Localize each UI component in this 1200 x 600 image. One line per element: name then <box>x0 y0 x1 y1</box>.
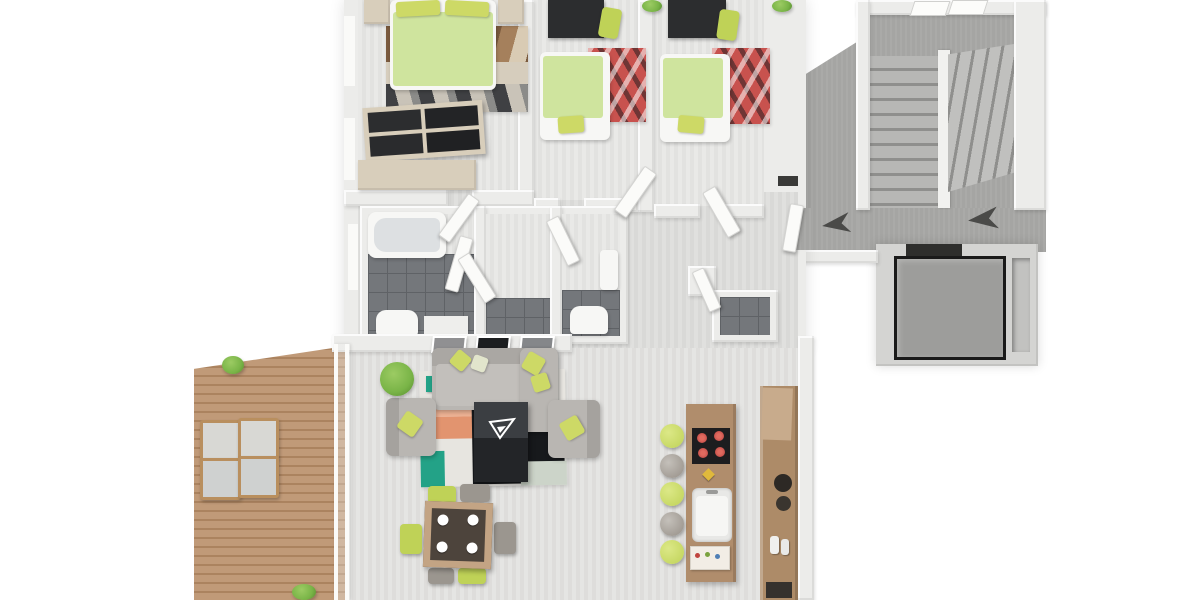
landing-corridor-floor <box>806 40 860 252</box>
wardrobe-panel <box>426 129 480 153</box>
dining-chair <box>460 484 490 502</box>
bar-stool <box>660 424 684 448</box>
sideboard <box>358 160 476 190</box>
dining-chair <box>494 522 516 554</box>
serving-tray <box>690 546 730 570</box>
armchair <box>548 400 600 458</box>
wardrobe-panel <box>369 133 423 157</box>
outdoor-chair <box>238 456 279 498</box>
wardrobe-panel <box>424 105 478 129</box>
bed-throw <box>677 115 704 134</box>
single-bed <box>540 52 610 140</box>
bed-duvet <box>393 12 493 86</box>
appliance-dark <box>766 582 792 598</box>
outdoor-chair <box>238 418 279 460</box>
potted-plant <box>380 362 414 396</box>
bathroom-shelf <box>424 316 468 336</box>
dinner-plate <box>436 541 447 552</box>
coffee-table <box>474 402 528 482</box>
coffee-table-logo <box>487 416 517 442</box>
toilet <box>570 306 608 334</box>
terrace-glass-wall <box>334 344 350 600</box>
armchair-pillow <box>558 414 585 441</box>
outdoor-chair <box>200 458 241 500</box>
bottle <box>770 536 779 554</box>
floorplan-canvas <box>0 0 1200 600</box>
terrace-plant <box>222 356 244 374</box>
staircase-left-flight <box>870 56 940 208</box>
living-right-wall <box>798 336 814 600</box>
double-bed <box>390 0 496 90</box>
tray-item <box>715 554 720 559</box>
wardrobe <box>362 100 485 162</box>
bathtub <box>368 212 446 258</box>
window-sill <box>344 118 355 180</box>
cooktop <box>692 428 730 464</box>
bar-stool <box>660 512 684 536</box>
burner <box>697 433 707 443</box>
kitchen-sink <box>692 488 732 542</box>
washbasin <box>600 250 618 290</box>
single-bed <box>660 54 730 142</box>
shower-tile-floor <box>486 298 550 336</box>
elevator-side-shaft <box>1012 258 1030 352</box>
burner <box>714 431 724 441</box>
armchair <box>386 398 436 456</box>
burner <box>715 447 725 457</box>
dining-chair <box>428 568 454 584</box>
bar-stool <box>660 540 684 564</box>
bar-stool <box>660 482 684 506</box>
sink-basin <box>696 496 728 536</box>
tray-item <box>705 552 710 557</box>
dinner-plate <box>466 542 477 553</box>
potted-plant <box>642 0 662 12</box>
nightstand <box>364 0 390 24</box>
bed-throw <box>557 115 584 134</box>
desk <box>548 0 604 38</box>
tray-item <box>695 553 700 558</box>
wall-kid2-bottom <box>654 204 700 218</box>
terrace-plant <box>292 584 316 600</box>
wall-master-bottom <box>344 190 448 206</box>
stairwell-wall-right <box>1014 0 1046 210</box>
window-sill <box>344 16 355 86</box>
burner <box>698 448 708 458</box>
stairwell-wall-left <box>856 0 870 210</box>
closet-floor <box>720 297 770 335</box>
dinner-plate <box>467 514 478 525</box>
elevator-cabin <box>894 256 1006 360</box>
appliance <box>776 496 791 511</box>
wardrobe-panel <box>368 109 422 133</box>
cabinet-top-panel <box>761 387 793 440</box>
dining-chair <box>400 524 422 554</box>
desk-chair <box>716 9 740 41</box>
faucet <box>706 490 718 494</box>
armchair-pillow <box>396 410 424 438</box>
appliance <box>774 474 792 492</box>
bed-duvet <box>663 58 723 118</box>
dining-chair <box>458 568 486 584</box>
armchair-back <box>587 400 600 458</box>
bed-pillow <box>396 0 441 17</box>
bathtub-basin <box>374 218 440 252</box>
stairwell-window <box>948 0 989 15</box>
toilet <box>376 310 418 336</box>
staircase-right-flight <box>948 44 1014 192</box>
dinner-plate <box>437 514 448 525</box>
nightstand <box>498 0 524 24</box>
kitchen-cabinet-column <box>760 386 798 600</box>
bar-stool <box>660 454 684 478</box>
rug-patch-teal <box>420 451 445 487</box>
outdoor-chair <box>200 420 241 462</box>
dining-table <box>423 501 493 569</box>
wall-master-bottom <box>472 190 534 206</box>
bottle <box>781 539 789 555</box>
stairwell-window <box>910 1 951 16</box>
wall-niche <box>778 176 798 186</box>
bed-duvet <box>543 56 603 118</box>
potted-plant <box>772 0 792 12</box>
bed-pillow <box>445 0 490 17</box>
